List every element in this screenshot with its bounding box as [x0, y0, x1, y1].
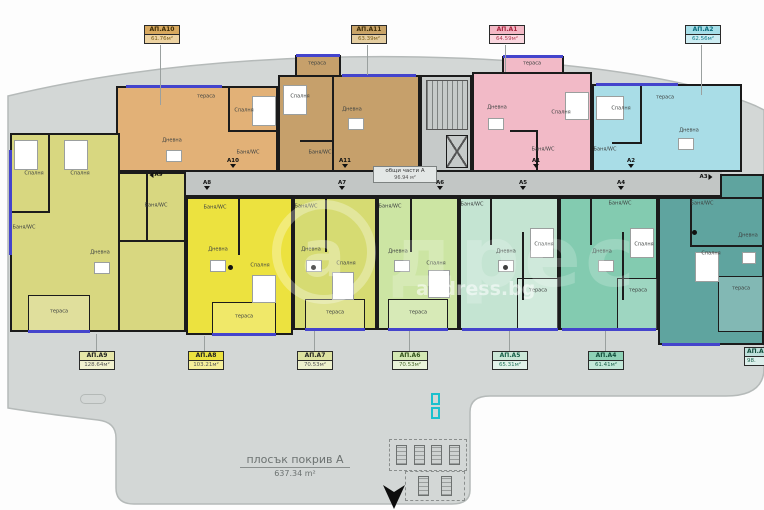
leader-line: [367, 45, 368, 75]
label-box-a10: АП.А10 61.76м²: [144, 25, 180, 44]
axis-marker-a11: А11: [339, 158, 351, 168]
axis-arrow-down-icon: [628, 164, 634, 168]
room-label: тераса: [197, 95, 215, 100]
axis-arrow-down-icon: [342, 164, 348, 168]
room-label: Дневна: [90, 251, 110, 256]
wall: [510, 130, 538, 132]
room-label: Спалня: [250, 264, 269, 269]
wall: [48, 133, 50, 213]
axis-arrow-down-icon: [533, 164, 539, 168]
wall: [10, 211, 50, 213]
apartment-a3-north: [720, 174, 764, 199]
table: [488, 118, 504, 130]
leader-line: [509, 331, 510, 351]
room-label: тераса: [235, 315, 253, 320]
roof-unit: [418, 476, 429, 496]
label-box-a6: АП.А6 70.53м²: [392, 351, 428, 370]
room-label: Спалня: [534, 243, 553, 248]
wall: [325, 197, 327, 252]
axis-arrow-down-icon: [520, 186, 526, 190]
roof-units-group: [389, 439, 467, 471]
leader-line: [505, 45, 506, 72]
window: [662, 343, 720, 346]
table: [598, 260, 614, 272]
room-label: Спалня: [24, 172, 43, 177]
wall: [690, 245, 764, 247]
table: [348, 118, 364, 130]
leader-line: [96, 334, 97, 351]
table: [166, 150, 182, 162]
window: [342, 74, 416, 77]
table: [742, 252, 756, 264]
roof-unit: [414, 445, 425, 465]
bed: [14, 140, 38, 170]
room-label: Баня/WC: [204, 206, 227, 211]
bed: [252, 96, 276, 126]
window: [296, 54, 340, 57]
skylight: [431, 393, 440, 405]
roof-unit: [449, 445, 460, 465]
room-label: Спалня: [426, 262, 445, 267]
wall: [228, 130, 278, 132]
axis-marker-a10: А10: [227, 158, 239, 168]
floor-plan: тераса Спалня Дневна Баня/WC тераса Спал…: [0, 0, 764, 510]
room-label: Баня/WC: [295, 205, 318, 210]
elevator: [446, 135, 468, 168]
stairs: [426, 80, 468, 130]
room-label: тераса: [629, 289, 647, 294]
window: [388, 328, 448, 331]
roof-label: плосък покрив А: [240, 453, 349, 468]
label-box-a2: АП.А2 62.56м²: [685, 25, 721, 44]
axis-marker-a4: А4: [617, 180, 625, 190]
bed: [64, 140, 88, 170]
room-label: Спалня: [234, 109, 253, 114]
label-box-a1: АП.А1 64.59м²: [489, 25, 525, 44]
label-box-a5: АП.А5 65.31м²: [492, 351, 528, 370]
axis-marker-a7: А7: [338, 180, 346, 190]
window: [503, 55, 563, 58]
wall: [238, 197, 240, 255]
wall: [332, 75, 334, 172]
roof-caption: плосък покрив А 637.34 m²: [225, 448, 365, 479]
label-box-a11: АП.А11 63.39м²: [351, 25, 387, 44]
north-arrow-icon: [381, 483, 409, 510]
leader-line: [314, 331, 315, 351]
axis-arrow-down-icon: [339, 186, 345, 190]
window: [126, 85, 222, 88]
axis-marker-a2: А2: [627, 158, 635, 168]
room-label: Баня/WC: [691, 202, 714, 207]
axis-marker-a6: А6: [436, 180, 444, 190]
room-label: тераса: [50, 310, 68, 315]
room-label: Баня/WC: [609, 202, 632, 207]
roof-unit: [396, 445, 407, 465]
window: [562, 328, 656, 331]
label-box-a8: АП.А8 103.21м²: [188, 351, 224, 370]
wall: [300, 140, 332, 142]
wall: [622, 232, 624, 300]
leader-line: [160, 45, 161, 105]
room-label: Дневна: [592, 250, 612, 255]
apartment-a9-east: [118, 172, 186, 332]
room-label: Баня/WC: [532, 148, 555, 153]
bed: [332, 272, 354, 300]
axis-marker-a1: А1: [532, 158, 540, 168]
window: [596, 83, 678, 86]
room-label: Баня/WC: [594, 148, 617, 153]
column-dot: [311, 265, 316, 270]
leader-line: [204, 336, 205, 351]
common-area-label: общи части А: [376, 168, 434, 175]
roof-drain-icon: [80, 394, 106, 404]
column-dot: [503, 265, 508, 270]
room-label: Баня/WC: [309, 151, 332, 156]
room-label: Дневна: [301, 248, 321, 253]
wall: [410, 197, 412, 252]
room-label: Спалня: [290, 95, 309, 100]
axis-arrow-left-icon: [149, 172, 153, 178]
skylight: [431, 407, 440, 419]
room-label: тераса: [656, 96, 674, 101]
axis-marker-a5: А5: [519, 180, 527, 190]
room-label: Дневна: [496, 250, 516, 255]
roof-area: 637.34 m²: [225, 468, 365, 479]
room-label: Дневна: [162, 139, 182, 144]
axis-marker-a3: А3: [699, 174, 712, 180]
label-box-a9: АП.А9 128.64м²: [79, 351, 115, 370]
room-label: Спалня: [551, 111, 570, 116]
axis-arrow-right-icon: [709, 174, 713, 180]
room-label: Спалня: [611, 107, 630, 112]
room-label: тераса: [523, 62, 541, 67]
room-label: Дневна: [738, 234, 758, 239]
label-box-a4: АП.А4 61.41м²: [588, 351, 624, 370]
room-label: Баня/WC: [461, 203, 484, 208]
window: [9, 150, 12, 255]
room-label: Спалня: [336, 262, 355, 267]
room-label: Спалня: [634, 243, 653, 248]
room-label: Спалня: [70, 172, 89, 177]
terrace-a3: [718, 276, 764, 332]
common-area-value: 96.94 м²: [376, 175, 434, 181]
axis-arrow-down-icon: [230, 164, 236, 168]
wall: [120, 240, 186, 242]
axis-marker-a8: А8: [203, 180, 211, 190]
table: [678, 138, 694, 150]
room-label: тераса: [326, 311, 344, 316]
column-dot: [692, 230, 697, 235]
axis-arrow-down-icon: [204, 186, 210, 190]
bed: [695, 252, 719, 282]
room-label: тераса: [308, 62, 326, 67]
room-label: Дневна: [342, 108, 362, 113]
room-label: Дневна: [208, 248, 228, 253]
room-label: Спалня: [701, 252, 720, 257]
room-label: Баня/WC: [145, 204, 168, 209]
window: [462, 328, 558, 331]
window: [212, 333, 276, 336]
wall: [490, 197, 492, 245]
room-label: Дневна: [679, 129, 699, 134]
bed: [565, 92, 589, 120]
room-label: Дневна: [487, 106, 507, 111]
roof-unit: [431, 445, 442, 465]
room-label: Баня/WC: [13, 226, 36, 231]
leader-line: [605, 331, 606, 351]
wall: [612, 142, 642, 144]
axis-arrow-down-icon: [437, 186, 443, 190]
room-label: тераса: [732, 287, 750, 292]
label-box-a7: АП.А7 70.53м²: [297, 351, 333, 370]
room-label: Баня/WC: [237, 151, 260, 156]
wall: [522, 232, 524, 300]
roof-unit: [441, 476, 452, 496]
table: [94, 262, 110, 274]
table: [210, 260, 226, 272]
wall: [590, 197, 592, 245]
bed: [428, 270, 450, 298]
window: [28, 330, 90, 333]
axis-arrow-down-icon: [618, 186, 624, 190]
column-dot: [228, 265, 233, 270]
table: [394, 260, 410, 272]
room-label: Дневна: [388, 250, 408, 255]
common-area-tag: общи части А 96.94 м²: [373, 166, 437, 183]
wall: [640, 84, 642, 144]
leader-line: [409, 331, 410, 351]
wall: [228, 86, 230, 132]
bed: [252, 275, 276, 303]
leader-line: [701, 45, 702, 95]
roof-units-group: [405, 471, 465, 501]
room-label: тераса: [409, 311, 427, 316]
room-label: Баня/WC: [379, 205, 402, 210]
room-label: тераса: [529, 289, 547, 294]
label-box-a3: АП.А3 98.: [744, 347, 764, 366]
axis-marker-a9: А9: [149, 172, 162, 178]
bed: [283, 85, 307, 115]
